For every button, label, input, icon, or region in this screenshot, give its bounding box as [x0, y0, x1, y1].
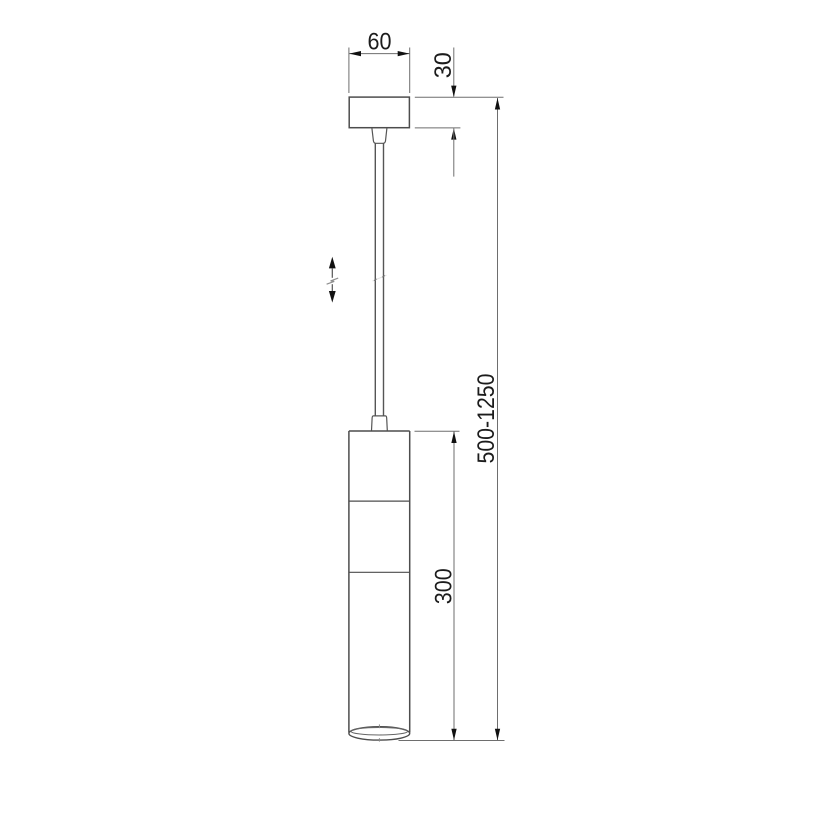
svg-text:500-1250: 500-1250: [473, 374, 500, 464]
svg-text:300: 300: [430, 568, 457, 604]
svg-text:30: 30: [430, 52, 457, 78]
svg-text:60: 60: [368, 29, 392, 56]
